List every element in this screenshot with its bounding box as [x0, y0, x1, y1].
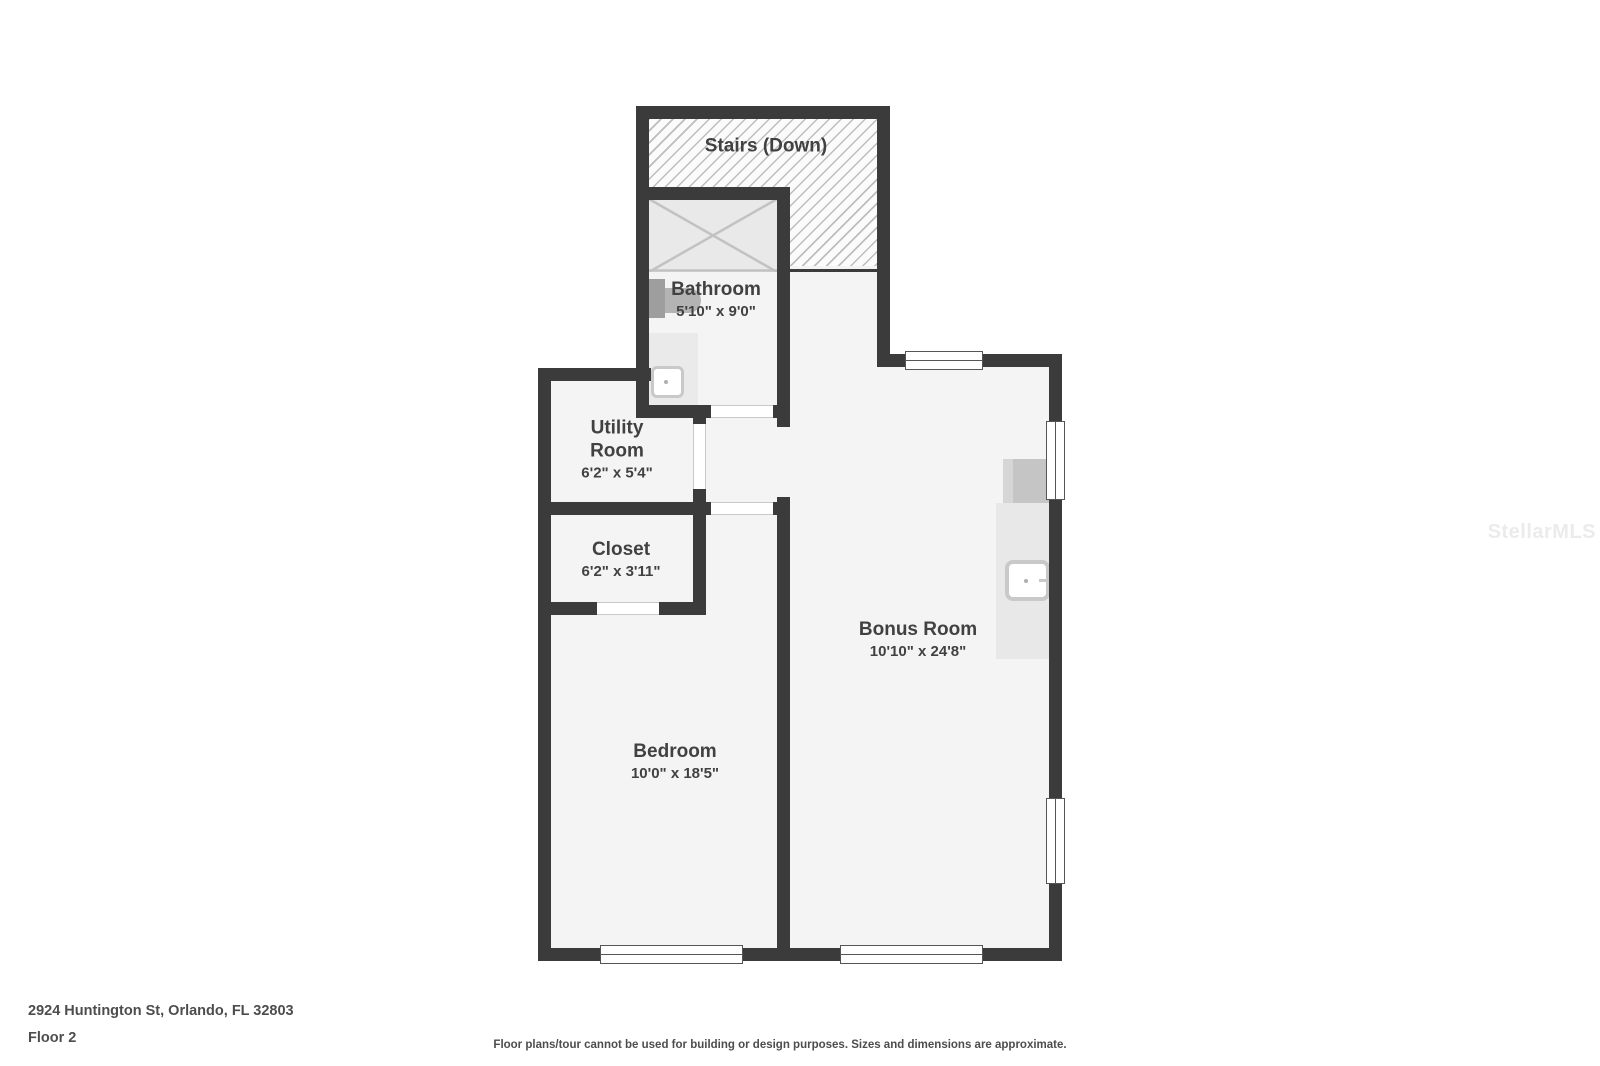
utility-room-door-opening [693, 424, 706, 489]
closet-name: Closet [582, 538, 661, 561]
bonus-right-upper-window [1046, 421, 1065, 500]
bonus-sink-fixture [1005, 560, 1050, 601]
wall-utility-top [538, 368, 651, 381]
wall-stairs-right [877, 106, 890, 366]
appliance-strip [1003, 459, 1013, 503]
wall-bathroom-top [636, 187, 790, 200]
wall-left-main [538, 368, 551, 961]
stairs-name: Stairs (Down) [705, 135, 827, 158]
bonus-room-dims: 10'10" x 24'8" [859, 641, 977, 662]
bonus-room-name: Bonus Room [859, 618, 977, 641]
sink-faucet-tick [1039, 579, 1048, 582]
bathroom-sink-fixture [651, 366, 684, 398]
bathroom-name: Bathroom [671, 278, 761, 301]
stairs-label: Stairs (Down) [705, 135, 827, 158]
sink-faucet-dot [664, 380, 668, 384]
hallway-floor [649, 405, 783, 515]
toilet-tank [649, 279, 665, 318]
bonus-room-corridor-floor [783, 266, 884, 366]
bedroom-dims: 10'0" x 18'5" [631, 763, 719, 784]
utility-room-label: Utility Room 6'2" x 5'4" [581, 417, 652, 484]
utility-name-line2: Room [581, 440, 652, 463]
wall-closet-right [693, 515, 706, 615]
wall-stairs-top [638, 106, 890, 119]
shower-fixture [649, 199, 777, 272]
bedroom-door-opening [711, 502, 773, 515]
bedroom-name: Bedroom [631, 740, 719, 763]
bonus-top-window [905, 351, 983, 370]
wall-bedroom-bonus-divider [777, 497, 790, 961]
appliance-fixture [1013, 459, 1049, 503]
bedroom-label: Bedroom 10'0" x 18'5" [631, 740, 719, 784]
wall-bathroom-right [777, 187, 790, 427]
property-address: 2924 Huntington St, Orlando, FL 32803 [28, 1003, 294, 1019]
utility-dims: 6'2" x 5'4" [581, 463, 652, 484]
wall-stairs-thin-edge [790, 269, 877, 272]
floor-plan-canvas: Stairs (Down) Bathroom 5'10" x 9'0" Util… [0, 0, 1600, 1066]
bathroom-dims: 5'10" x 9'0" [671, 301, 761, 322]
utility-name-line1: Utility [581, 417, 652, 440]
bonus-bottom-window [840, 945, 983, 964]
closet-door-opening [597, 602, 659, 615]
sink-faucet-dot [1024, 579, 1028, 583]
bedroom-bottom-window [600, 945, 743, 964]
bathroom-door-opening [711, 405, 773, 418]
bonus-right-lower-window [1046, 798, 1065, 884]
closet-dims: 6'2" x 3'11" [582, 561, 661, 582]
disclaimer-text: Floor plans/tour cannot be used for buil… [493, 1039, 1066, 1051]
stellar-mls-watermark: StellarMLS [1488, 521, 1596, 544]
bathroom-label: Bathroom 5'10" x 9'0" [671, 278, 761, 322]
floor-indicator: Floor 2 [28, 1030, 76, 1046]
bonus-room-label: Bonus Room 10'10" x 24'8" [859, 618, 977, 662]
closet-label: Closet 6'2" x 3'11" [582, 538, 661, 582]
